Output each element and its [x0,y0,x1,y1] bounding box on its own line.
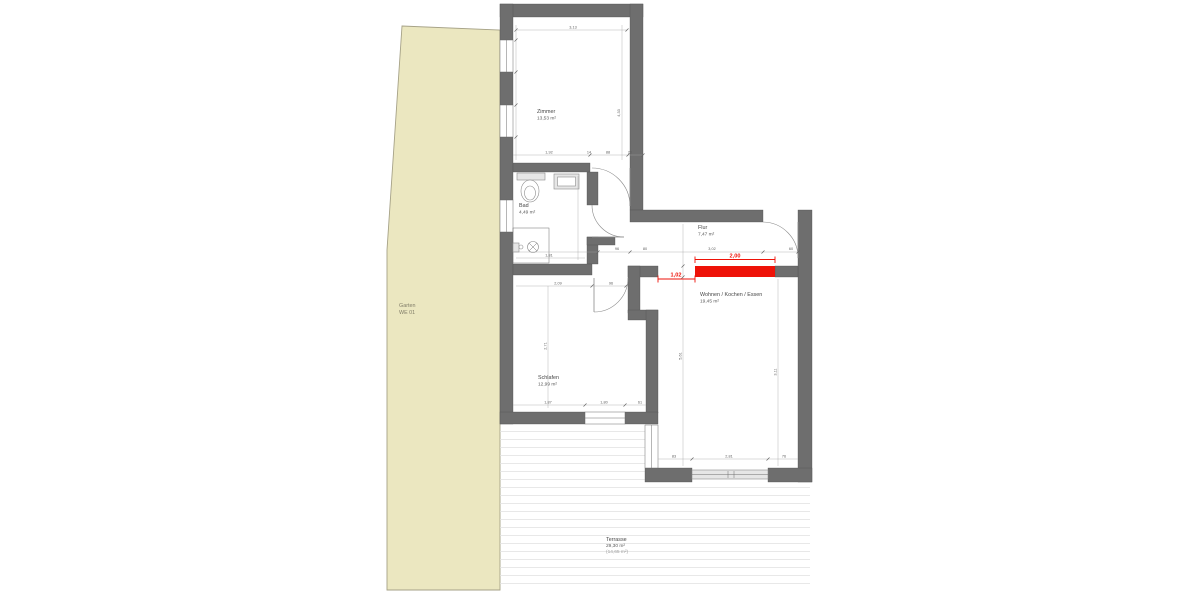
floor-plan-svg: Garten WE 01 Terrasse 29,30 m² (14,65 m²… [0,0,1200,600]
wall-zimmer-right [630,4,643,210]
zimmer-label: Zimmer [537,109,555,115]
dim-wohnen-b1: 83 [672,455,676,459]
dim-zimmer-b1: 1,92 [545,151,552,155]
terrasse-area-secondary: (14,65 m²) [606,549,629,555]
dim-bad-width: 1,81 [545,254,552,258]
garden-area: Garten WE 01 [387,26,500,590]
window-icon [500,200,513,232]
wall-wohnen-left-lower [646,310,658,413]
sink-basin [558,177,576,186]
wall-zimmer-bottom [513,163,590,172]
dim-zimmer-top: 3,13 [569,26,576,30]
dim-schlafen-t1: 2,09 [554,282,561,286]
bad-label: Bad [519,203,529,209]
dim-wohnen-b3: 76 [782,455,786,459]
wall-schlafen-bottom-left [500,412,585,424]
dim-schlafen-t2: 96 [609,282,613,286]
dim-schlafen-left: 2,71 [544,342,548,349]
wall-flur-south-right [775,266,798,277]
terrace-sliding-door-icon [692,470,768,479]
window-icon [500,40,513,72]
floor-plan-page: Garten WE 01 Terrasse 29,30 m² (14,65 m²… [0,0,1200,600]
door-bad-icon [592,205,624,237]
wall-schlafen-bottom-right [625,412,658,424]
terrasse-label: Terrasse [606,537,627,543]
dim-zimmer-right: 4,33 [617,109,621,116]
window-icon [500,105,513,137]
dim-flur-3: 3,02 [708,247,715,251]
schlafen-area: 12,99 m² [538,382,557,388]
dim-schlafen-b3: 61 [638,401,642,405]
dim-flur-2: 80 [643,247,647,251]
flur-label: Flur [698,225,707,231]
dim-zimmer-b3: 88 [606,151,610,155]
dim-wohnen-b2: 2,81 [725,455,732,459]
schlafen-label: Schlafen [538,375,559,381]
wall-flur-top [630,210,763,222]
wohnen-label: Wohnen / Kochen / Essen [700,292,762,298]
dim-schlafen-b1: 1,87 [544,401,551,405]
wall-wohnen-left-upper [628,266,640,313]
wall-top [500,4,643,17]
terrace-deck-left [500,424,645,590]
shower-valve-icon [519,245,523,249]
wall-left-seg2 [500,72,513,105]
wall-bad-schlafen [513,264,592,275]
wall-left-seg4 [500,232,513,424]
zimmer-area: 13,53 m² [537,116,556,122]
dim-flur-4: 60 [789,247,793,251]
toilet-bowl-inner [525,186,536,200]
wall-right-exterior [798,210,812,482]
wohnen-area: 19,45 m² [700,299,719,305]
wall-bad-corner-stub [587,237,615,245]
garden-label: Garten [399,303,415,309]
toilet-tank-icon [517,173,545,180]
dim-zimmer-b2: 14 [587,151,591,155]
dim-wohnen-left: 5,61 [679,352,683,359]
dim-highlight-offset: 1,02 [671,273,682,279]
wall-wohnen-bottom-right [768,468,812,482]
doors [592,168,798,312]
bathroom-fixtures [513,173,579,263]
wall-left-seg1 [500,4,513,40]
highlight-wall: 2,00 1,02 [658,254,775,283]
door-entrance-icon [763,222,798,258]
dim-highlight-length: 2,00 [730,254,741,260]
bad-area: 4,49 m² [519,210,536,216]
dim-flur-1: 96 [615,247,619,251]
wall-wohnen-bottom-left [645,468,692,482]
flur-area: 7,47 m² [698,232,715,238]
terrace-deck-right [645,484,810,590]
dim-schlafen-b2: 1,80 [600,401,607,405]
apartment-walls [500,4,812,482]
window-icon [645,425,658,468]
window-icon [585,412,625,424]
wall-bad-right-upper [587,172,598,205]
highlighted-wall-segment [695,266,775,277]
wall-left-seg3 [500,137,513,200]
terrasse-area: 29,30 m² [606,543,625,549]
dim-zimmer-b4: 26 [628,151,632,155]
garden-unit-label: WE 01 [399,310,415,316]
shower-fitting-icon [513,243,519,252]
dim-wohnen-right: 3,11 [774,368,778,375]
